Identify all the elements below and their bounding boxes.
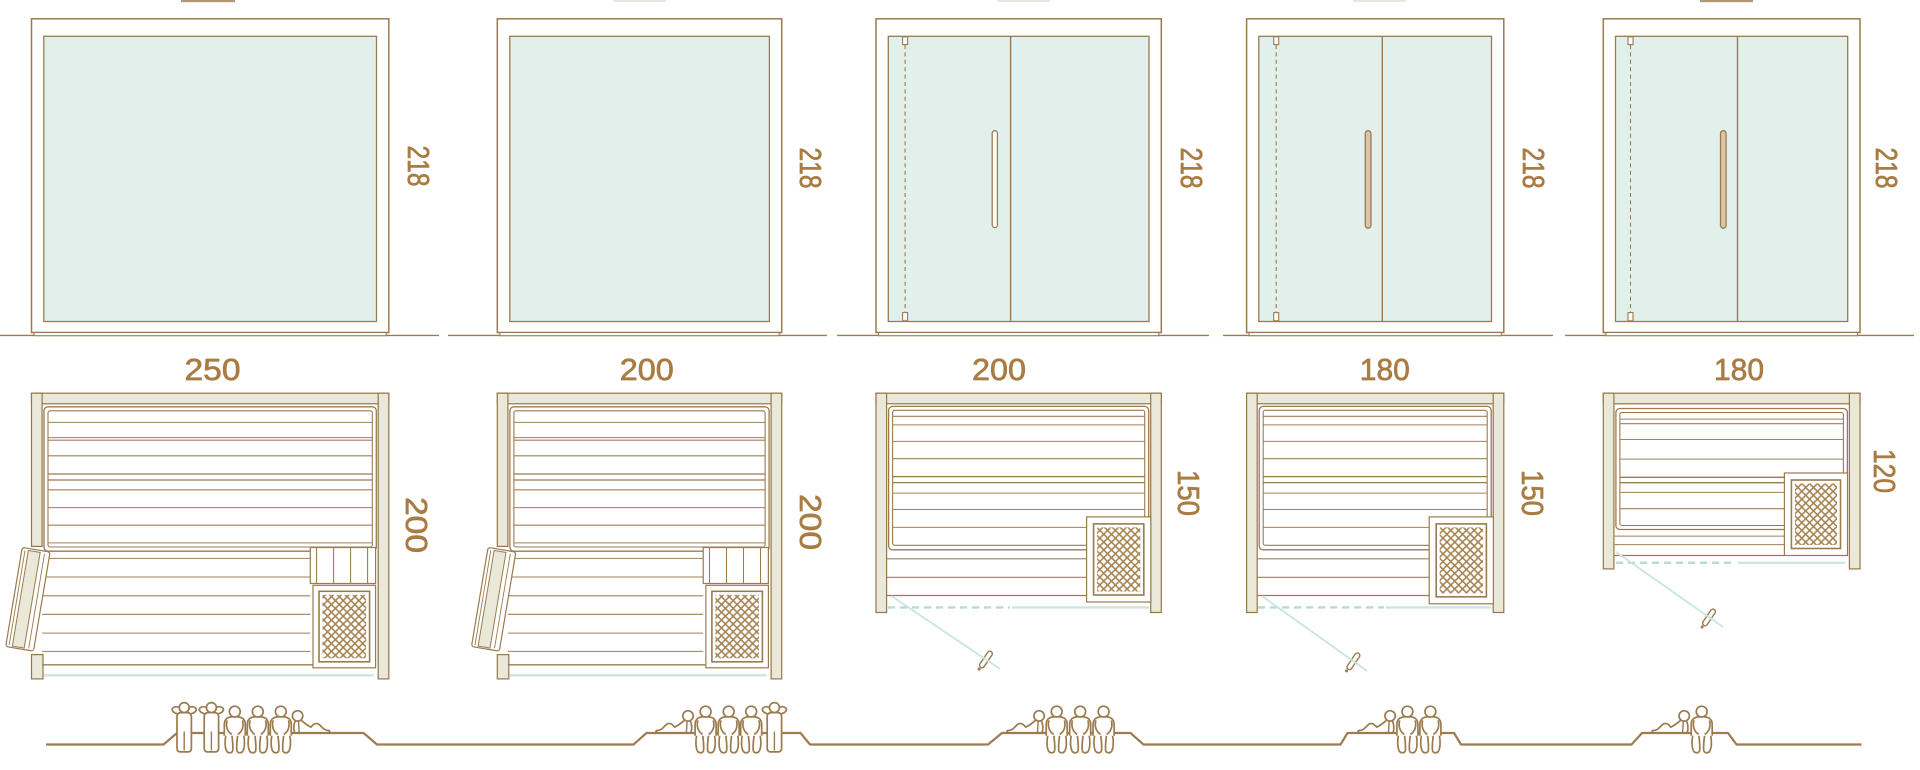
svg-text:218: 218 [1869, 148, 1904, 189]
svg-text:200: 200 [620, 352, 674, 387]
svg-text:218: 218 [1174, 148, 1209, 189]
svg-text:180: 180 [1714, 352, 1764, 387]
svg-text:200: 200 [972, 352, 1026, 387]
svg-text:180: 180 [1360, 352, 1410, 387]
svg-text:150: 150 [1171, 470, 1206, 516]
svg-text:150: 150 [1515, 470, 1550, 516]
svg-text:218: 218 [401, 146, 436, 187]
svg-text:218: 218 [1516, 148, 1551, 189]
svg-text:250: 250 [185, 352, 241, 387]
svg-text:200: 200 [793, 494, 828, 550]
svg-text:120: 120 [1867, 449, 1902, 493]
svg-text:200: 200 [399, 497, 434, 553]
svg-text:218: 218 [793, 148, 828, 189]
